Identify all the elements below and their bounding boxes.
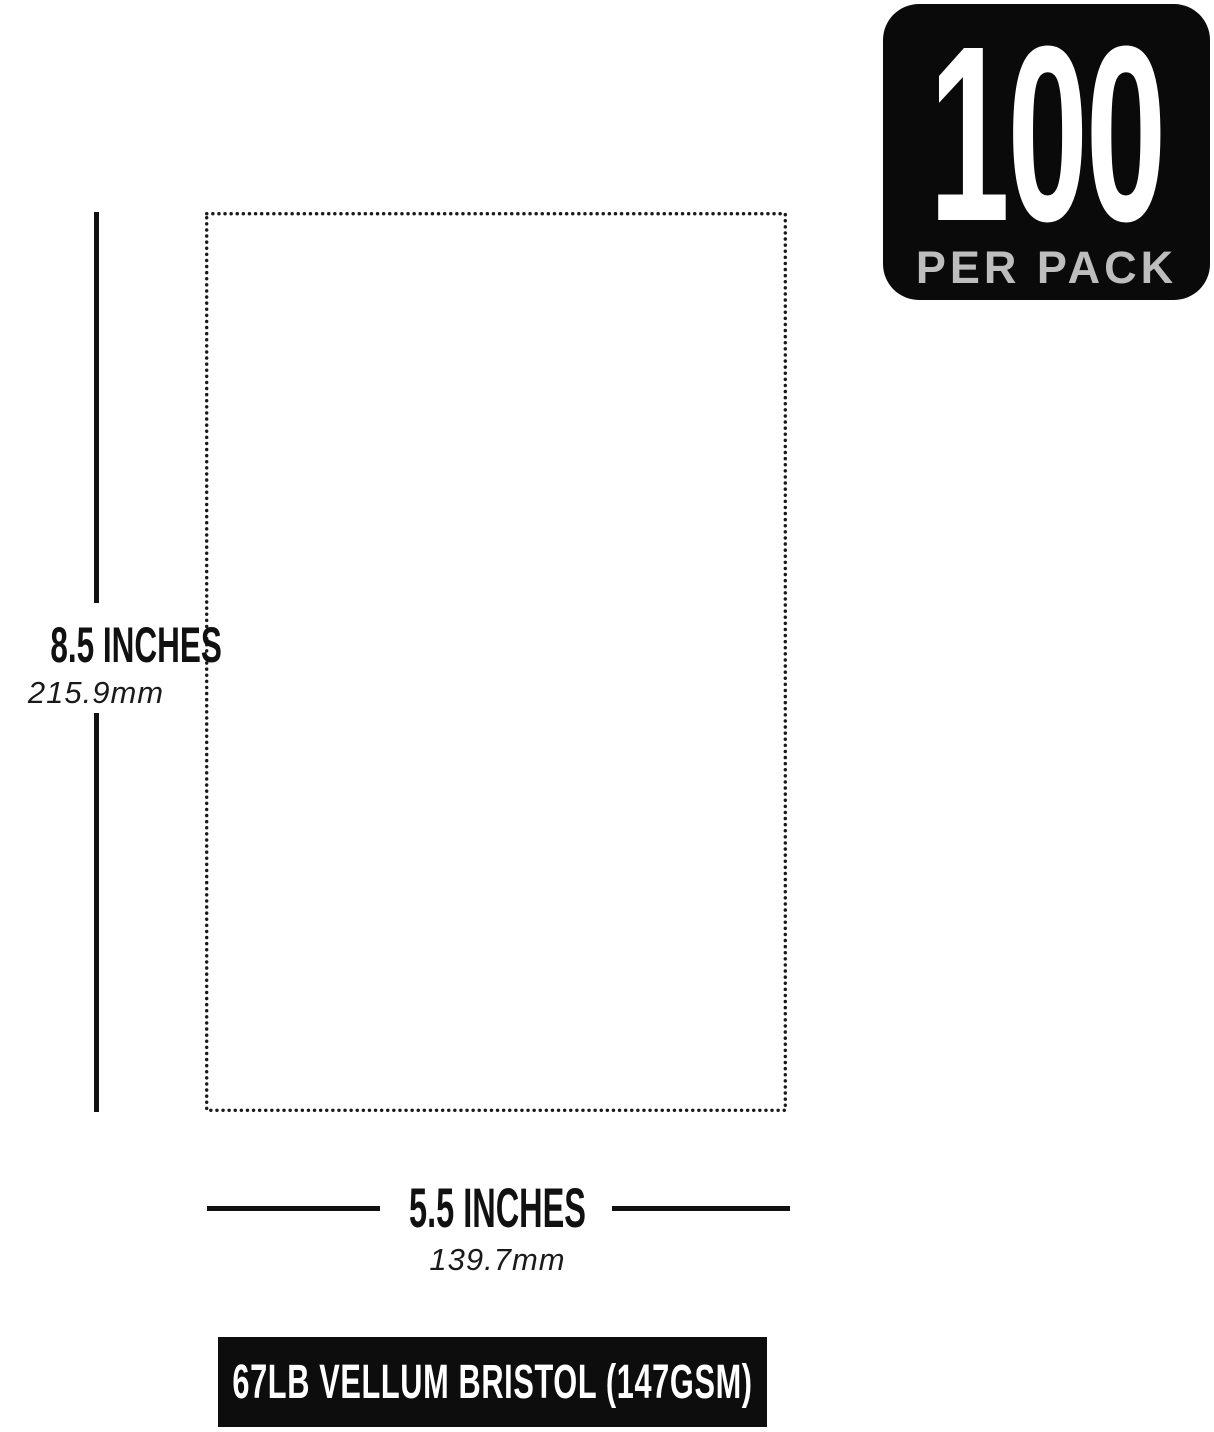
width-inches-label: 5.5 INCHES [409, 1183, 586, 1233]
height-dimension-line-top [94, 212, 99, 603]
paper-outline-rect [207, 214, 786, 1111]
product-dimension-diagram: 100 PER PACK 8.5 INCHES 215.9mm 5.5 INCH… [0, 0, 1214, 1432]
paper-outline [205, 212, 787, 1112]
height-dimension-label: 8.5 INCHES 215.9mm [0, 620, 192, 710]
width-dimension-line-right [612, 1206, 790, 1211]
height-inches-label: 8.5 INCHES [50, 620, 222, 670]
paper-stock-plate: 67LB VELLUM BRISTOL (147GSM) [218, 1337, 767, 1427]
paper-stock-label: 67LB VELLUM BRISTOL (147GSM) [232, 1355, 752, 1410]
height-mm-label: 215.9mm [0, 676, 192, 710]
width-dimension-label: 5.5 INCHES 139.7mm [205, 1183, 790, 1277]
width-mm-label: 139.7mm [205, 1243, 790, 1277]
height-dimension-line-bottom [94, 713, 99, 1112]
per-pack-badge: 100 PER PACK [883, 4, 1210, 300]
pack-count: 100 [929, 26, 1164, 242]
